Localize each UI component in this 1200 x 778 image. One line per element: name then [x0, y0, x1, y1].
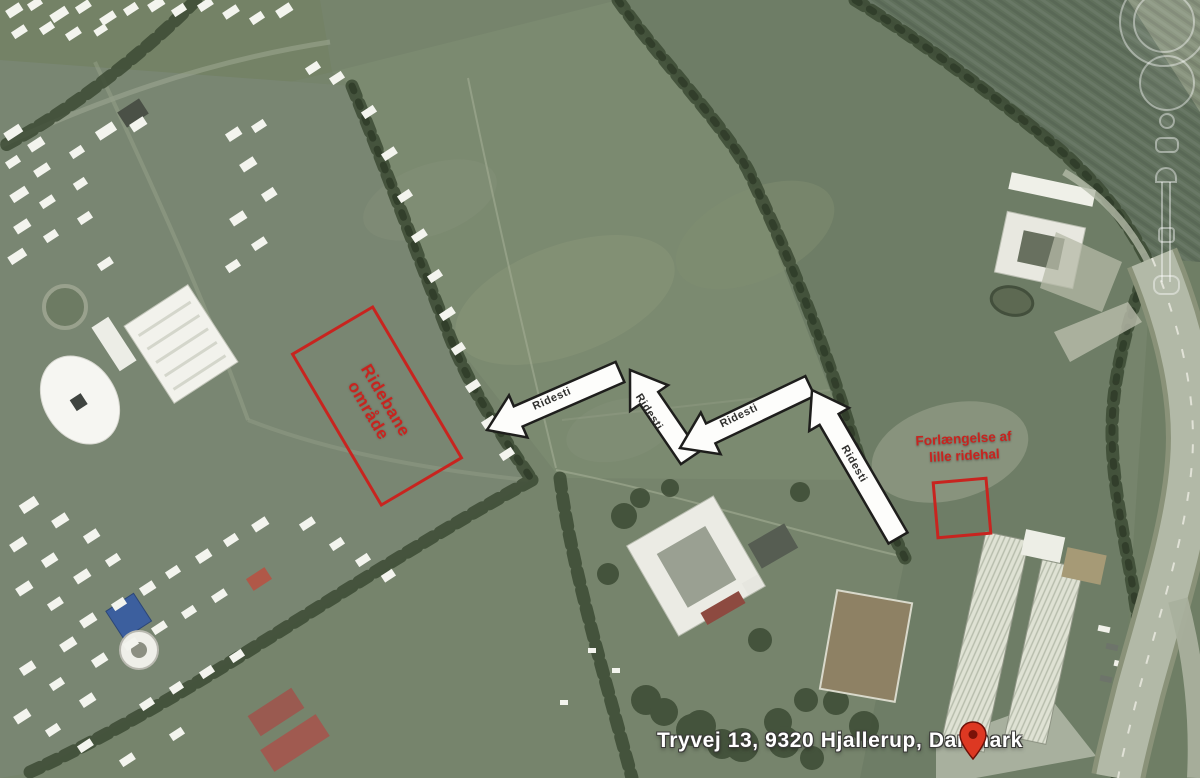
ferris-wheel: [44, 286, 86, 328]
satellite-imagery: [0, 0, 1200, 778]
riding-area-label: Ridebane område: [340, 361, 415, 450]
hall-extension-rectangle: [932, 477, 993, 540]
pan-joystick-icon[interactable]: [1140, 56, 1194, 152]
hall-extension-label: Forlængelse af lille ridehal: [896, 428, 1032, 469]
zoom-slider-icon[interactable]: [1154, 168, 1179, 294]
navigation-controls[interactable]: [1110, 0, 1200, 314]
map-pin-icon[interactable]: [958, 721, 988, 761]
sand-arena: [820, 590, 912, 702]
aerial-map[interactable]: Ridesti Ridesti Ridesti Ridesti Ridebane…: [0, 0, 1200, 778]
